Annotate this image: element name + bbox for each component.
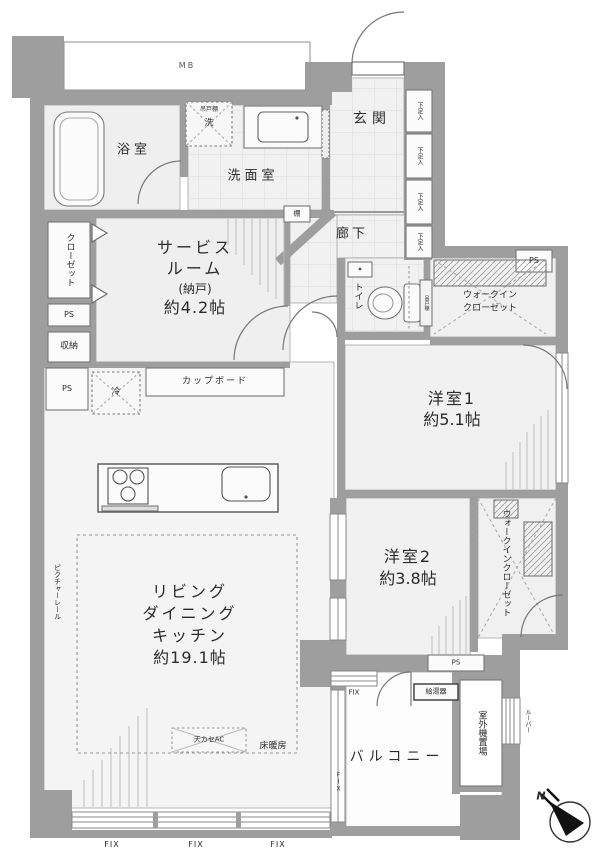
ldk-label-1: リビング <box>152 584 228 600</box>
bedroom1-size-label: 約5.1帖 <box>423 412 480 428</box>
floor-plan: MB 浴室 洗面室 吊戸棚 洗 玄関 廊下 クローゼット PS 収納 サービス … <box>0 0 600 862</box>
service-room-label-2: ルーム <box>167 261 224 277</box>
wic2-label-1: ウォークイン <box>501 509 510 563</box>
outdoor-unit-label: 室外機置場 <box>477 711 486 756</box>
ldk-door-arc-child <box>312 312 337 337</box>
service-room-label-3: (納戸) <box>178 283 211 295</box>
shoe-box-label-1: 下足入 <box>416 102 422 120</box>
ps-label-balcony: PS <box>452 660 461 667</box>
fix-label-5: FIX <box>335 772 341 793</box>
shoe-box-label-4: 下足入 <box>416 233 422 251</box>
bathroom-label: 浴室 <box>117 144 151 157</box>
stove-grill <box>102 506 158 511</box>
service-room-label-4: 約4.2帖 <box>164 300 226 316</box>
wic2-label-2: クローゼット <box>501 563 510 617</box>
cupboard-label: カップボード <box>182 378 248 387</box>
fix-windows-bottom <box>72 812 330 828</box>
bedroom2-size-label: 約3.8帖 <box>379 571 436 587</box>
fix-label-1: FIX <box>104 841 119 849</box>
shoe-box-label-3: 下足入 <box>416 193 422 211</box>
hanging-cabinet-label: 吊戸棚 <box>200 107 218 113</box>
wic1-label-1: ウォークイン <box>463 292 517 301</box>
compass <box>541 789 590 842</box>
fridge-label: 冷 <box>111 389 120 398</box>
mb-label: MB <box>179 62 195 70</box>
floor-heating-label: 床暖房 <box>259 743 286 752</box>
louver-label: ルーバー <box>524 709 530 733</box>
compass-tail-2 <box>547 789 559 801</box>
faucet-dot <box>295 116 298 119</box>
closet-label: クローゼット <box>65 233 74 287</box>
ldk-door-arc-main <box>283 296 337 350</box>
fix-window-bedroom2 <box>331 671 377 686</box>
ldk-label-3: キッチン <box>152 628 228 644</box>
toilet-tank <box>404 284 420 322</box>
compass-needle <box>549 801 584 836</box>
corridor-label: 廊下 <box>336 228 368 241</box>
storage-label: 収納 <box>60 343 78 352</box>
shelf-label: 棚 <box>294 211 301 218</box>
fix-label-3: FIX <box>270 841 285 849</box>
ldk-label-2: ダイニング <box>142 606 237 622</box>
wic1-label-2: クローゼット <box>463 305 517 314</box>
bathtub <box>54 112 104 206</box>
fix-label-4: FIX <box>349 690 360 697</box>
toilet-label: トイレ <box>353 283 362 310</box>
wic2-label: ウォークインクローゼット <box>501 509 510 617</box>
floorplan-graphic <box>0 0 600 862</box>
ps-label-bottom-left: PS <box>62 385 72 393</box>
water-heater-label: 給湯器 <box>426 689 447 696</box>
entrance-door-leaf <box>352 62 404 75</box>
bedroom2-name-label: 洋室2 <box>384 549 432 565</box>
entrance-door-arc <box>352 12 404 64</box>
ps-label-top-right: PS <box>529 257 539 265</box>
washroom-sliding-door <box>322 110 329 158</box>
service-room-label-1: サービス <box>157 240 233 256</box>
ldk-label-4: 約19.1帖 <box>153 650 227 666</box>
washroom-label: 洗面室 <box>227 170 278 183</box>
washer-label: 洗 <box>204 120 213 129</box>
shoe-box-label-2: 下足入 <box>416 147 422 165</box>
toilet-cabinet-label: 吊戸棚 <box>424 296 429 311</box>
entrance-label: 玄関 <box>353 112 391 126</box>
fix-label-2: FIX <box>188 841 203 849</box>
balcony-label: バルコニー <box>350 750 445 764</box>
compass-north-label: N <box>536 791 545 802</box>
ceiling-ac-label: 天カセAC <box>194 737 225 744</box>
picture-rail-label: ピクチャーレール <box>54 564 61 620</box>
louver-vent <box>502 698 520 744</box>
bedroom1-name-label: 洋室1 <box>428 391 476 407</box>
ps-label-left: PS <box>64 311 74 319</box>
